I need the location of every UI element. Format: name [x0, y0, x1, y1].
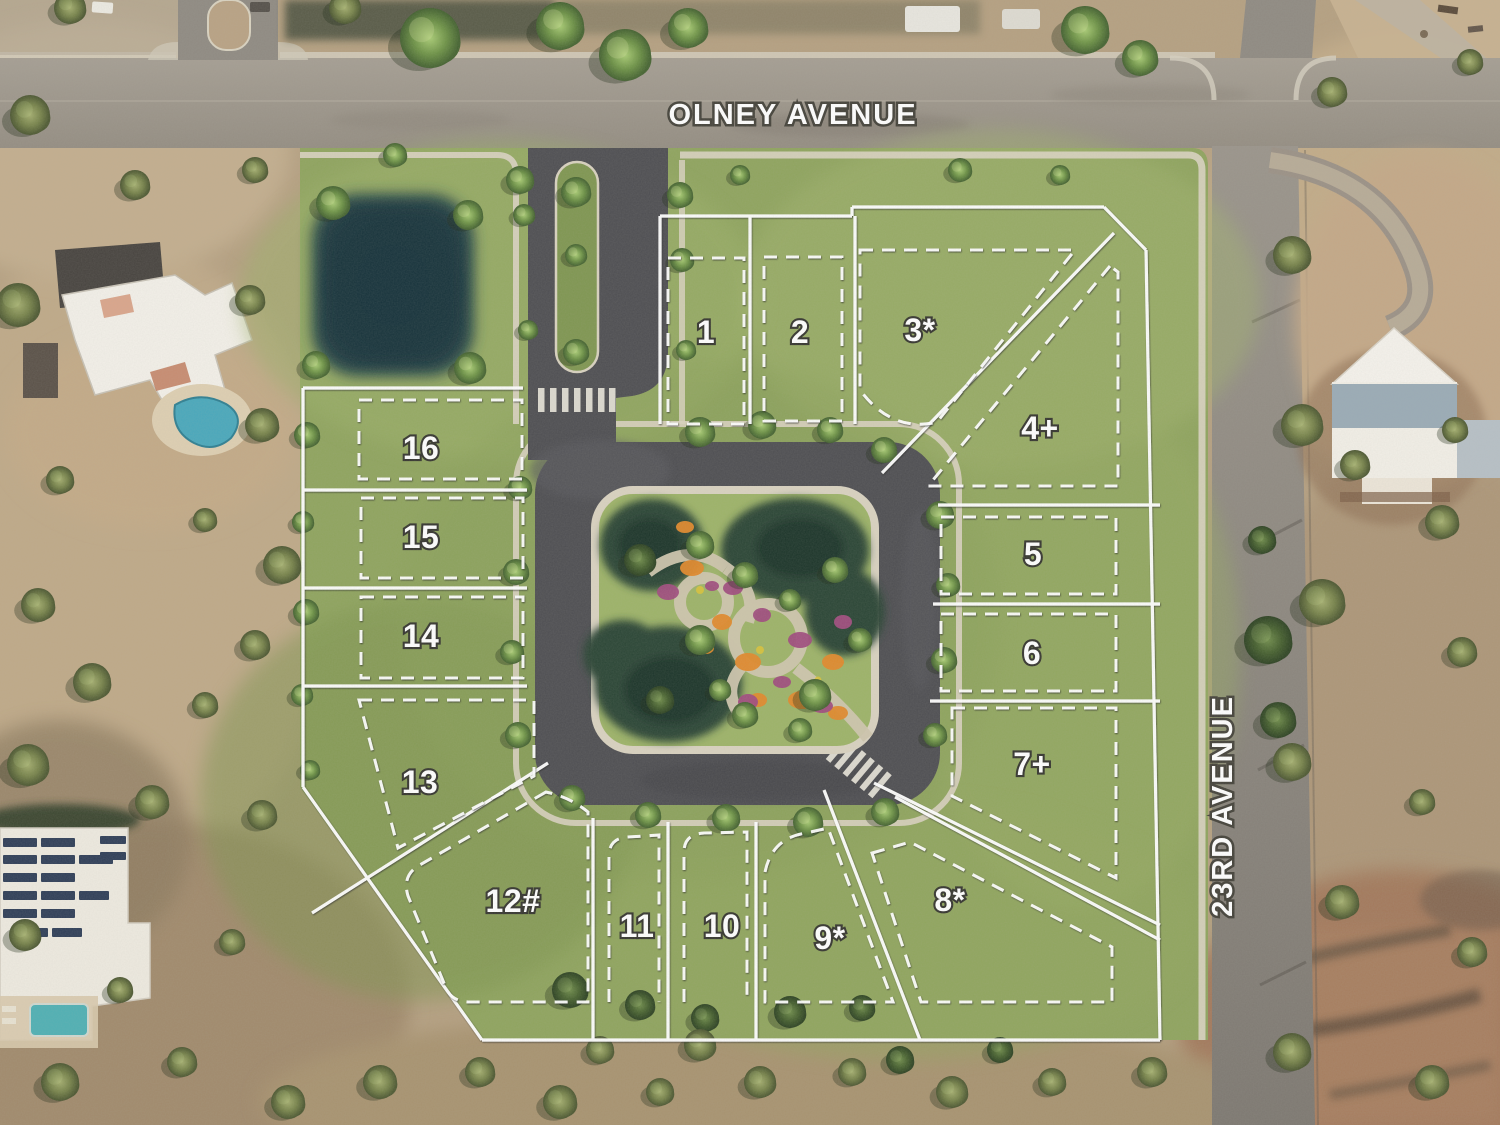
- site-plan-map: 1 2 3* 4+ 5 6 7+ 8* 9* 10 11 12# 13 14 1…: [0, 0, 1500, 1125]
- aerial-canvas: 1 2 3* 4+ 5 6 7+ 8* 9* 10 11 12# 13 14 1…: [0, 0, 1500, 1125]
- photo-grain-overlay: [0, 0, 1500, 1125]
